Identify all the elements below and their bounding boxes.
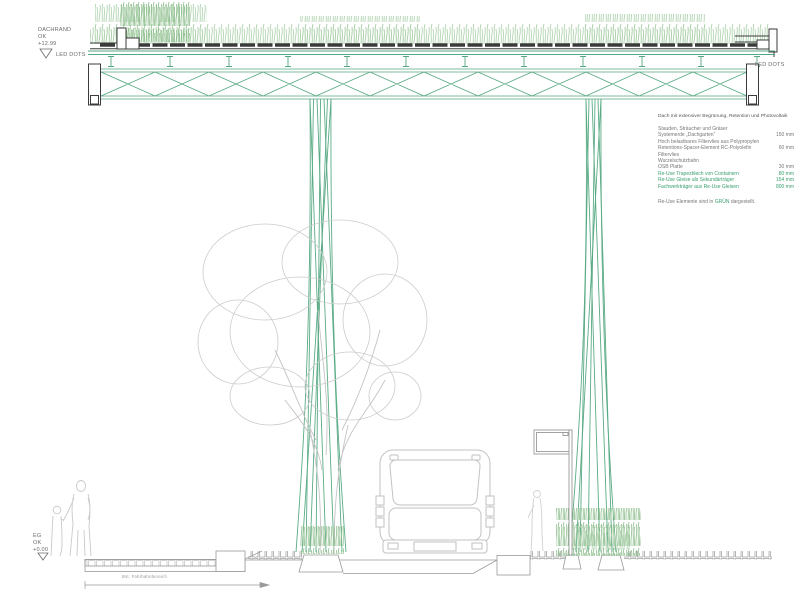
architectural-section-drawing: DACHRAND OK +12.99 LED DOTS LED DOTS EG … [0,0,800,600]
column-left [296,99,346,552]
led-dots-label-right: LED DOTS [755,62,785,68]
dachrand-level-label: DACHRAND OK +12.99 [38,27,71,48]
legend-title: Dach mit extensiver Begrünung, Retention… [658,114,794,119]
foundations [299,555,624,572]
truss-end-post-right [747,64,759,105]
person-at-column [528,491,543,552]
legend-footer: Re-Use Elemente sind in GRÜN dargestellt… [658,199,794,205]
truss-end-post-left [89,64,101,105]
eg-level-label: EG OK +0.00 [33,533,48,554]
dimension-arrow [85,581,269,589]
column-right [570,99,616,552]
roof-vegetation [90,0,772,45]
platform-label: Bst. Fahrbahnbereich [122,574,167,579]
legend-footer-highlight: GRÜN [715,199,730,205]
roof-truss [101,69,747,99]
roof-deck [88,51,775,55]
person-child [51,506,64,556]
person-adult [63,481,91,557]
ground-platform [85,551,262,572]
section-linework [0,0,800,600]
dachrand-level-marker [40,49,52,58]
bus [376,450,494,553]
roof-buildup-legend: Dach mit extensiver Begrünung, Retention… [658,114,794,205]
led-dots-label-left: LED DOTS [56,52,86,58]
legend-row-reuse: Fachwerkträger aus Re-Use Gleisen800 mm [658,184,794,190]
secondary-beam-clips [108,57,760,67]
eg-level-marker [38,553,48,560]
